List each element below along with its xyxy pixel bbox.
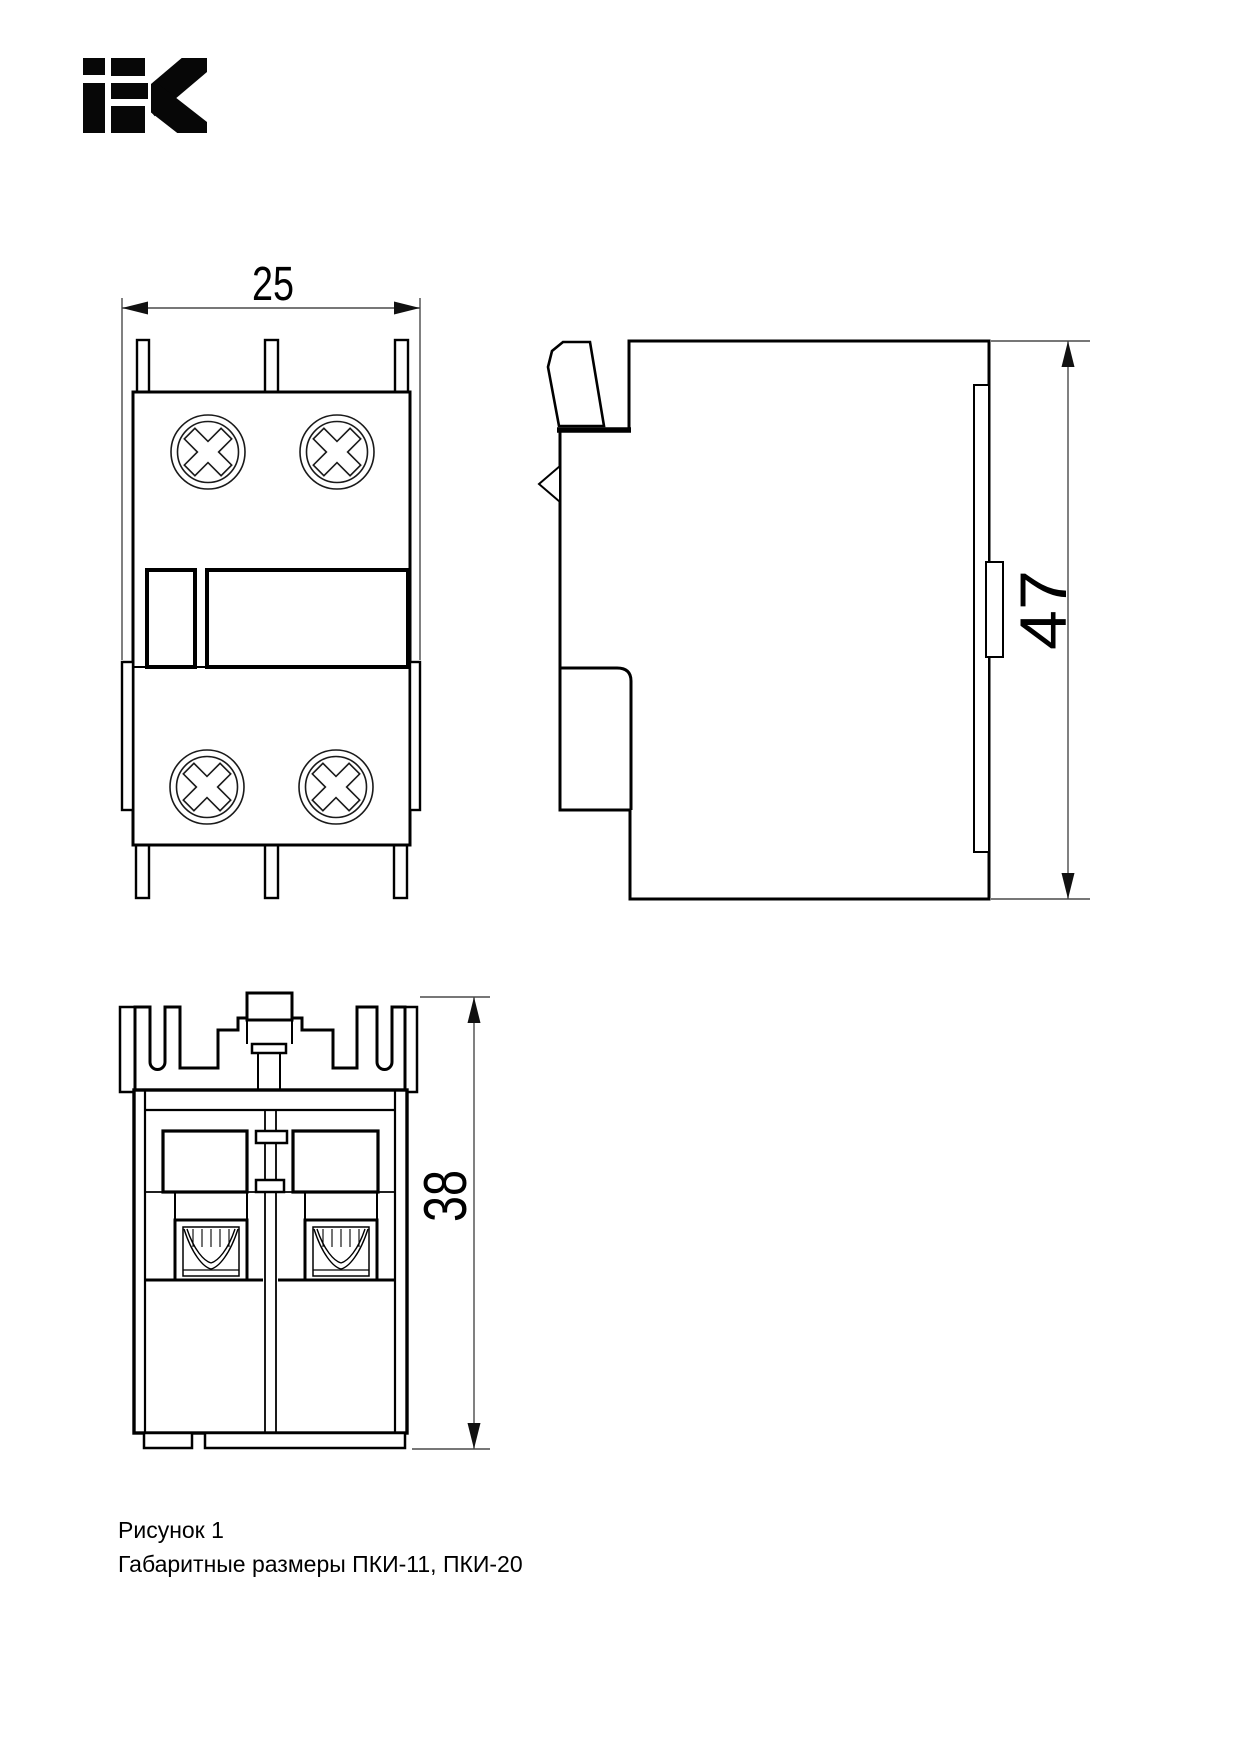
caption-line-2: Габаритные размеры ПКИ-11, ПКИ-20 <box>118 1551 523 1577</box>
technical-drawing: 25 <box>0 0 1237 1750</box>
figure-caption: Рисунок 1 Габаритные размеры ПКИ-11, ПКИ… <box>118 1517 523 1577</box>
din-clip-tab <box>247 993 292 1020</box>
pointer-triangle <box>539 466 560 502</box>
channel-block <box>256 1180 284 1192</box>
terminal-pin <box>265 340 278 392</box>
wire-clamp <box>175 1220 247 1280</box>
marking-window-small <box>147 570 195 667</box>
latch-bump <box>986 562 1003 657</box>
terminal-pin <box>265 845 278 898</box>
base-strip <box>144 1433 192 1448</box>
arrow-up-icon <box>1062 341 1075 367</box>
front-view: 25 <box>122 258 420 898</box>
logo-i-body <box>83 83 105 133</box>
mount-flange <box>405 1007 417 1092</box>
terminal-pin <box>394 845 407 898</box>
actuator-lever <box>548 342 604 426</box>
logo-e-bar <box>111 106 145 133</box>
drawing-page: 25 <box>0 0 1237 1750</box>
dimension-25-label: 25 <box>252 258 294 311</box>
base-strip <box>205 1433 405 1448</box>
device-body-side <box>560 341 989 899</box>
logo-e-bar <box>111 83 148 99</box>
side-tab <box>410 662 420 810</box>
terminal-pin <box>395 340 408 392</box>
side-tab <box>122 662 133 810</box>
iek-logo <box>83 50 212 143</box>
arrow-up-icon <box>468 997 481 1023</box>
mount-flange <box>120 1007 135 1092</box>
terminal-pin <box>136 845 149 898</box>
dimension-38-label: 38 <box>412 1170 479 1222</box>
logo-i-dot <box>83 58 105 75</box>
arrow-down-icon <box>468 1423 481 1449</box>
marking-window-large <box>207 570 408 667</box>
contact-cavity <box>163 1131 247 1192</box>
logo-e-bar <box>111 58 145 76</box>
caption-line-1: Рисунок 1 <box>118 1517 224 1543</box>
arrow-down-icon <box>1062 873 1075 899</box>
bottom-view: 38 <box>120 993 490 1449</box>
dimension-height-38 <box>412 997 490 1449</box>
terminal-pin <box>137 340 149 392</box>
side-view: 47 <box>539 341 1090 899</box>
logo-k <box>146 50 212 143</box>
arrow-right-icon <box>394 302 420 315</box>
contact-cavity <box>293 1131 378 1192</box>
dimension-47-label: 47 <box>1006 570 1080 650</box>
clip-spring-bar <box>252 1044 286 1053</box>
wire-clamp <box>305 1220 377 1280</box>
arrow-left-icon <box>122 302 148 315</box>
channel-block <box>256 1131 287 1143</box>
